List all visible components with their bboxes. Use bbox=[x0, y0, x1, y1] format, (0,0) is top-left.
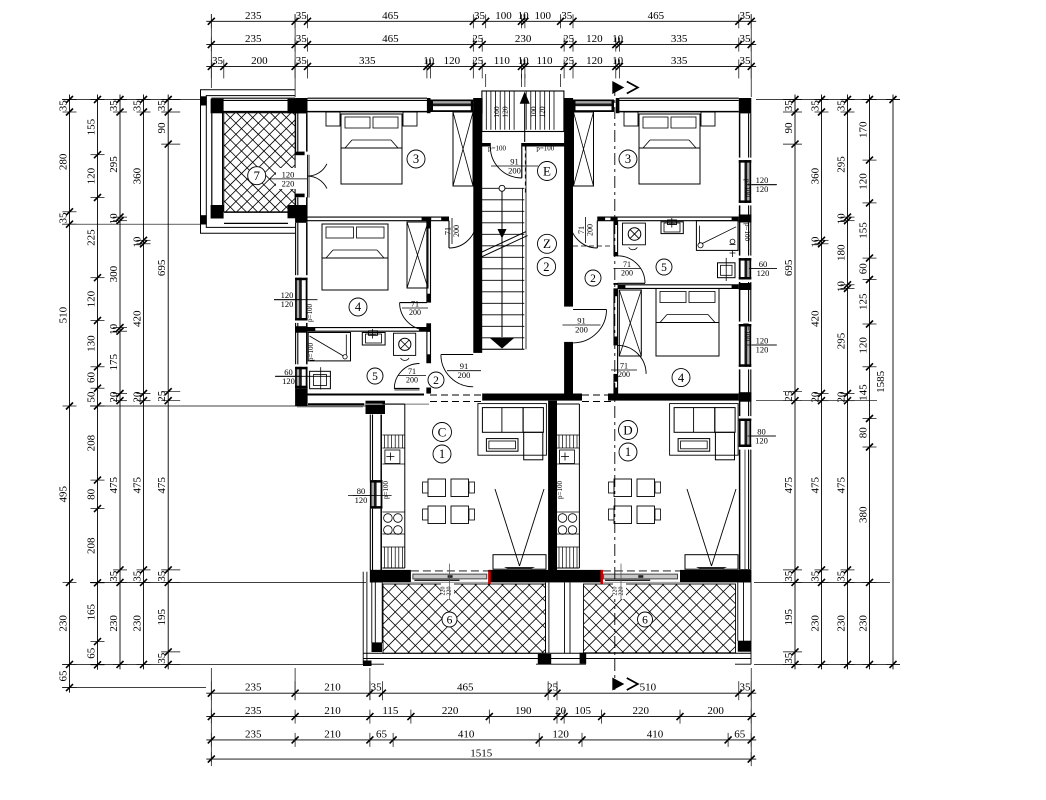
svg-text:335: 335 bbox=[671, 55, 688, 67]
svg-text:230: 230 bbox=[108, 615, 120, 632]
svg-text:20: 20 bbox=[555, 705, 567, 717]
svg-text:35: 35 bbox=[740, 33, 752, 45]
svg-text:D: D bbox=[623, 422, 632, 437]
svg-text:p=100: p=100 bbox=[488, 145, 506, 153]
svg-text:410: 410 bbox=[647, 728, 664, 740]
svg-text:80: 80 bbox=[86, 488, 98, 500]
svg-text:65: 65 bbox=[58, 670, 70, 682]
svg-text:25: 25 bbox=[547, 682, 559, 694]
svg-text:495: 495 bbox=[58, 485, 70, 502]
svg-text:6: 6 bbox=[447, 614, 453, 626]
svg-text:335: 335 bbox=[671, 33, 688, 45]
svg-text:200: 200 bbox=[621, 268, 633, 277]
svg-text:110: 110 bbox=[536, 55, 553, 67]
svg-text:35: 35 bbox=[296, 33, 308, 45]
svg-text:35: 35 bbox=[58, 212, 70, 224]
svg-text:100: 100 bbox=[495, 10, 512, 22]
svg-text:10: 10 bbox=[423, 55, 435, 67]
svg-text:300: 300 bbox=[108, 265, 120, 282]
svg-text:3: 3 bbox=[625, 152, 631, 166]
svg-text:200: 200 bbox=[707, 705, 724, 717]
svg-text:120: 120 bbox=[86, 290, 98, 307]
svg-text:295: 295 bbox=[836, 332, 848, 349]
svg-text:1: 1 bbox=[625, 445, 631, 459]
svg-text:60: 60 bbox=[86, 372, 98, 384]
svg-text:208: 208 bbox=[86, 537, 98, 554]
svg-text:10: 10 bbox=[836, 281, 848, 293]
svg-text:210: 210 bbox=[324, 705, 341, 717]
svg-text:510: 510 bbox=[58, 306, 70, 323]
svg-text:35: 35 bbox=[740, 10, 752, 22]
svg-text:295: 295 bbox=[108, 156, 120, 173]
svg-text:p=100: p=100 bbox=[307, 343, 315, 361]
svg-text:210: 210 bbox=[324, 682, 341, 694]
svg-text:4: 4 bbox=[355, 300, 362, 314]
svg-text:235: 235 bbox=[245, 705, 262, 717]
svg-text:475: 475 bbox=[156, 477, 168, 494]
svg-text:35: 35 bbox=[810, 100, 822, 112]
svg-text:200: 200 bbox=[458, 370, 471, 380]
svg-text:2: 2 bbox=[433, 375, 439, 387]
svg-text:475: 475 bbox=[108, 477, 120, 494]
svg-text:6: 6 bbox=[642, 614, 648, 626]
svg-text:2: 2 bbox=[590, 273, 596, 285]
svg-text:125: 125 bbox=[858, 293, 870, 310]
svg-text:200: 200 bbox=[586, 224, 595, 236]
svg-text:335: 335 bbox=[359, 55, 376, 67]
svg-text:380: 380 bbox=[858, 506, 870, 523]
svg-text:235: 235 bbox=[245, 728, 262, 740]
svg-text:295: 295 bbox=[836, 156, 848, 173]
svg-text:220: 220 bbox=[633, 705, 650, 717]
svg-text:35: 35 bbox=[783, 652, 795, 664]
svg-text:120: 120 bbox=[756, 345, 769, 355]
svg-text:220: 220 bbox=[619, 587, 625, 596]
svg-text:195: 195 bbox=[156, 608, 168, 625]
svg-text:35: 35 bbox=[108, 570, 120, 582]
svg-text:200: 200 bbox=[409, 308, 421, 317]
svg-text:220: 220 bbox=[282, 178, 295, 188]
svg-text:65: 65 bbox=[734, 728, 746, 740]
svg-text:35: 35 bbox=[371, 682, 383, 694]
svg-text:235: 235 bbox=[245, 682, 262, 694]
svg-text:35: 35 bbox=[156, 652, 168, 664]
svg-text:120: 120 bbox=[858, 173, 870, 190]
svg-text:105: 105 bbox=[575, 705, 592, 717]
svg-text:100: 100 bbox=[535, 10, 552, 22]
svg-text:25: 25 bbox=[783, 390, 795, 402]
svg-text:1: 1 bbox=[439, 447, 445, 461]
svg-text:200: 200 bbox=[508, 166, 521, 176]
svg-text:35: 35 bbox=[132, 570, 144, 582]
svg-text:120: 120 bbox=[538, 106, 547, 118]
svg-text:475: 475 bbox=[836, 477, 848, 494]
svg-text:65: 65 bbox=[86, 647, 98, 659]
svg-text:120: 120 bbox=[586, 33, 603, 45]
svg-text:420: 420 bbox=[132, 310, 144, 327]
svg-text:10: 10 bbox=[518, 10, 530, 22]
svg-text:165: 165 bbox=[86, 603, 98, 620]
svg-text:195: 195 bbox=[783, 608, 795, 625]
svg-text:10: 10 bbox=[518, 55, 530, 67]
svg-text:25: 25 bbox=[472, 33, 484, 45]
svg-text:p=100: p=100 bbox=[536, 145, 554, 153]
svg-text:120: 120 bbox=[86, 167, 98, 184]
svg-text:360: 360 bbox=[810, 167, 822, 184]
svg-text:10: 10 bbox=[612, 55, 624, 67]
svg-text:35: 35 bbox=[132, 100, 144, 112]
svg-text:35: 35 bbox=[783, 570, 795, 582]
svg-text:35: 35 bbox=[296, 10, 308, 22]
svg-text:120: 120 bbox=[552, 728, 569, 740]
svg-text:20: 20 bbox=[132, 391, 144, 403]
svg-text:35: 35 bbox=[156, 570, 168, 582]
svg-text:7: 7 bbox=[254, 169, 260, 183]
svg-text:25: 25 bbox=[472, 55, 484, 67]
svg-text:90: 90 bbox=[783, 122, 795, 134]
svg-text:420: 420 bbox=[810, 310, 822, 327]
svg-text:410: 410 bbox=[458, 728, 475, 740]
svg-text:120: 120 bbox=[282, 376, 295, 386]
svg-text:p=100: p=100 bbox=[306, 304, 314, 322]
svg-text:120: 120 bbox=[281, 299, 294, 309]
svg-text:p=100: p=100 bbox=[556, 481, 564, 499]
svg-text:200: 200 bbox=[406, 376, 418, 385]
svg-text:E: E bbox=[543, 163, 551, 178]
svg-text:35: 35 bbox=[561, 10, 573, 22]
svg-text:230: 230 bbox=[836, 615, 848, 632]
svg-text:230: 230 bbox=[132, 615, 144, 632]
svg-text:90: 90 bbox=[156, 122, 168, 134]
svg-text:35: 35 bbox=[810, 570, 822, 582]
svg-text:200: 200 bbox=[575, 325, 588, 335]
svg-text:65: 65 bbox=[376, 728, 388, 740]
svg-text:35: 35 bbox=[108, 100, 120, 112]
svg-text:170: 170 bbox=[858, 121, 870, 138]
svg-text:25: 25 bbox=[563, 33, 575, 45]
svg-text:3: 3 bbox=[413, 152, 419, 166]
svg-text:1515: 1515 bbox=[470, 748, 493, 760]
svg-text:465: 465 bbox=[648, 10, 665, 22]
svg-text:280: 280 bbox=[58, 153, 70, 170]
svg-text:120: 120 bbox=[757, 268, 770, 278]
svg-text:25: 25 bbox=[156, 390, 168, 402]
svg-text:35: 35 bbox=[156, 100, 168, 112]
svg-text:p=100: p=100 bbox=[382, 481, 390, 499]
svg-text:p=100: p=100 bbox=[743, 179, 751, 197]
svg-text:475: 475 bbox=[810, 477, 822, 494]
svg-text:35: 35 bbox=[836, 100, 848, 112]
svg-text:230: 230 bbox=[58, 615, 70, 632]
svg-text:115: 115 bbox=[382, 705, 399, 717]
svg-text:210: 210 bbox=[324, 728, 341, 740]
svg-text:35: 35 bbox=[836, 570, 848, 582]
svg-text:695: 695 bbox=[156, 259, 168, 276]
svg-text:225: 225 bbox=[86, 229, 98, 246]
svg-text:120: 120 bbox=[586, 55, 603, 67]
svg-text:4: 4 bbox=[678, 371, 685, 385]
svg-text:C: C bbox=[438, 424, 447, 439]
svg-text:25: 25 bbox=[563, 55, 575, 67]
svg-text:5: 5 bbox=[661, 262, 667, 274]
svg-text:510: 510 bbox=[640, 682, 657, 694]
svg-text:5: 5 bbox=[372, 371, 378, 383]
svg-text:120: 120 bbox=[755, 436, 768, 446]
svg-text:230: 230 bbox=[810, 615, 822, 632]
svg-text:1585: 1585 bbox=[875, 370, 887, 393]
svg-text:p=100: p=100 bbox=[743, 323, 751, 341]
svg-text:35: 35 bbox=[58, 100, 70, 112]
svg-text:p=100: p=100 bbox=[743, 223, 751, 241]
svg-text:235: 235 bbox=[245, 10, 262, 22]
svg-text:155: 155 bbox=[858, 222, 870, 239]
svg-text:35: 35 bbox=[740, 55, 752, 67]
svg-text:130: 130 bbox=[86, 335, 98, 352]
svg-text:180: 180 bbox=[836, 244, 848, 261]
svg-text:120: 120 bbox=[756, 184, 769, 194]
svg-text:208: 208 bbox=[86, 434, 98, 451]
svg-text:120: 120 bbox=[355, 495, 368, 505]
svg-text:465: 465 bbox=[382, 33, 399, 45]
svg-text:Z: Z bbox=[543, 236, 551, 251]
svg-text:235: 235 bbox=[245, 33, 262, 45]
svg-text:200: 200 bbox=[618, 370, 630, 379]
svg-text:80: 80 bbox=[858, 427, 870, 439]
svg-text:35: 35 bbox=[474, 10, 486, 22]
svg-text:10: 10 bbox=[108, 213, 120, 225]
svg-text:175: 175 bbox=[108, 354, 120, 371]
svg-text:230: 230 bbox=[858, 615, 870, 632]
svg-text:475: 475 bbox=[783, 477, 795, 494]
svg-text:20: 20 bbox=[108, 391, 120, 403]
svg-text:35: 35 bbox=[740, 682, 752, 694]
svg-text:35: 35 bbox=[783, 100, 795, 112]
svg-text:190: 190 bbox=[515, 705, 532, 717]
svg-text:110: 110 bbox=[494, 55, 511, 67]
svg-text:10: 10 bbox=[108, 323, 120, 335]
svg-text:2: 2 bbox=[543, 260, 549, 274]
svg-text:230: 230 bbox=[515, 33, 532, 45]
svg-text:35: 35 bbox=[296, 55, 308, 67]
svg-text:60: 60 bbox=[858, 263, 870, 275]
svg-text:120: 120 bbox=[858, 337, 870, 354]
svg-text:220: 220 bbox=[442, 705, 459, 717]
svg-text:120: 120 bbox=[501, 106, 510, 118]
svg-text:120: 120 bbox=[444, 55, 461, 67]
svg-text:695: 695 bbox=[783, 259, 795, 276]
svg-text:200: 200 bbox=[251, 55, 268, 67]
svg-text:145: 145 bbox=[858, 384, 870, 401]
svg-text:465: 465 bbox=[457, 682, 474, 694]
svg-text:50: 50 bbox=[86, 391, 98, 403]
svg-text:155: 155 bbox=[86, 118, 98, 135]
svg-text:360: 360 bbox=[132, 167, 144, 184]
svg-text:475: 475 bbox=[132, 477, 144, 494]
svg-text:200: 200 bbox=[452, 225, 461, 237]
svg-text:10: 10 bbox=[132, 236, 144, 248]
svg-text:465: 465 bbox=[382, 10, 399, 22]
svg-text:10: 10 bbox=[810, 236, 822, 248]
svg-text:10: 10 bbox=[836, 213, 848, 225]
svg-text:10: 10 bbox=[612, 33, 624, 45]
svg-text:35: 35 bbox=[212, 55, 224, 67]
